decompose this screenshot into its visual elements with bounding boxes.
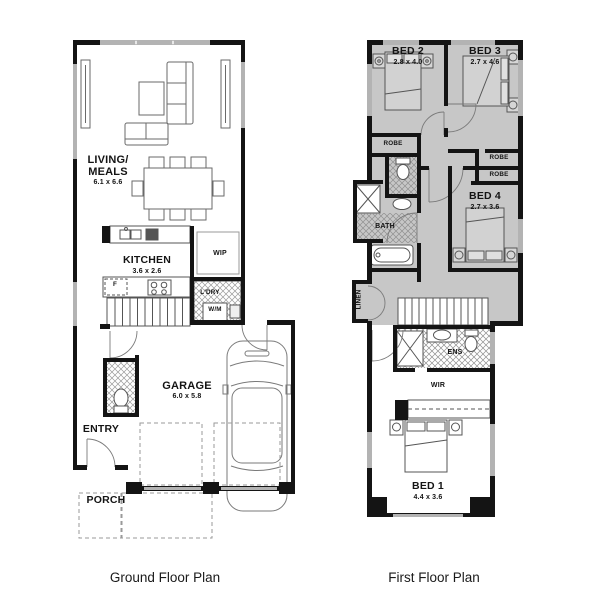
bed1-label: BED 1 4.4 x 3.6 — [393, 481, 463, 501]
washing-machine-label: W/M — [200, 307, 230, 314]
wir-label: WIR — [418, 382, 458, 390]
living-meals-label: LIVING/ MEALS 6.1 x 6.6 — [68, 154, 148, 187]
laundry-fixtures — [194, 281, 241, 321]
ens-label: ENS — [435, 349, 475, 357]
living-furniture — [81, 60, 230, 145]
first-floor-plan: BED 2 2.8 x 4.0 BED 3 2.7 x 4.6 BED 4 2.… — [345, 36, 530, 526]
garage-label: GARAGE 6.0 x 5.8 — [147, 380, 227, 401]
ground-floor-drawing — [64, 36, 314, 541]
living-meals-dims: 6.1 x 6.6 — [68, 179, 148, 187]
ground-floor-caption: Ground Floor Plan — [65, 570, 265, 585]
bed1-furniture — [390, 420, 462, 472]
bath-label: BATH — [365, 223, 405, 231]
entry-label: ENTRY — [76, 424, 126, 436]
kitchen-label: KITCHEN 3.6 x 2.6 — [107, 255, 187, 275]
upper-shower — [356, 185, 380, 213]
staircase — [107, 298, 190, 326]
fridge-label: F — [107, 282, 123, 289]
first-floor-caption: First Floor Plan — [334, 570, 534, 585]
living-meals-name: LIVING/ MEALS — [68, 154, 148, 178]
bed3-label: BED 3 2.7 x 4.6 — [450, 46, 520, 66]
bed4-label: BED 4 2.7 x 3.6 — [450, 191, 520, 211]
wip-label: WIP — [200, 250, 240, 258]
robe-bed4-label: ROBE — [479, 172, 519, 179]
linen-label: LINEN — [357, 287, 364, 311]
porch-label: PORCH — [76, 495, 136, 507]
laundry-label: L'DRY — [190, 290, 230, 297]
upper-wc — [389, 157, 417, 194]
wc-room — [107, 362, 135, 413]
floor-plan-sheet: LIVING/ MEALS 6.1 x 6.6 KITCHEN 3.6 x 2.… — [0, 0, 600, 600]
wir-wardrobe — [408, 400, 490, 418]
bed2-label: BED 2 2.8 x 4.0 — [373, 46, 443, 66]
ground-floor-plan: LIVING/ MEALS 6.1 x 6.6 KITCHEN 3.6 x 2.… — [64, 36, 314, 541]
robe-bed2-label: ROBE — [373, 141, 413, 148]
first-floor-drawing — [345, 36, 530, 526]
robe-bed3-label: ROBE — [479, 155, 519, 162]
